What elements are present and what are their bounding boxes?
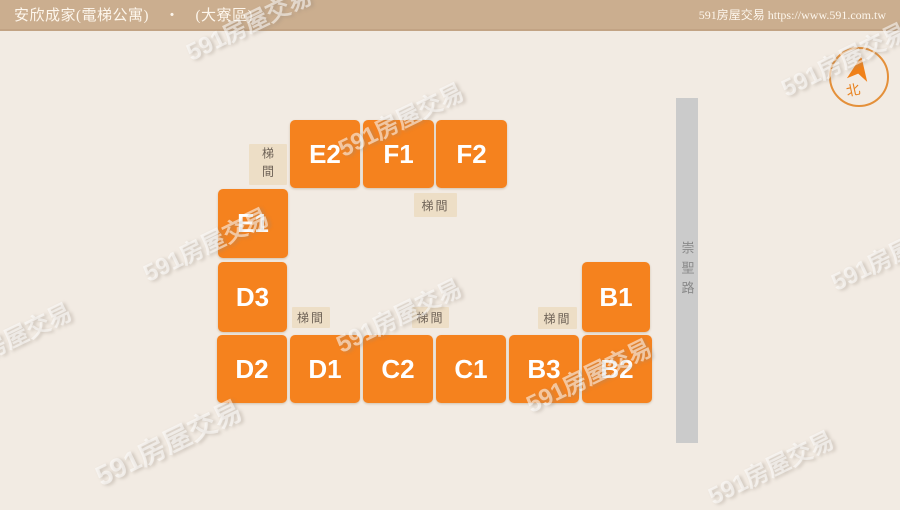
building-E1[interactable]: E1 xyxy=(218,189,288,258)
building-B1[interactable]: B1 xyxy=(582,262,650,332)
building-C2[interactable]: C2 xyxy=(363,335,433,403)
stairwell-label: 梯間 xyxy=(292,307,330,328)
building-B3[interactable]: B3 xyxy=(509,335,579,403)
stairwell-label: 梯間 xyxy=(412,307,449,328)
building-D2[interactable]: D2 xyxy=(217,335,287,403)
header-bar: 安欣成家(電梯公寓) ‧ (大寮區) 591房屋交易 https://www.5… xyxy=(0,0,900,31)
watermark: 591房屋交易 xyxy=(88,389,248,495)
building-E2[interactable]: E2 xyxy=(290,120,360,188)
site-plan-page: 安欣成家(電梯公寓) ‧ (大寮區) 591房屋交易 https://www.5… xyxy=(0,0,900,510)
compass: 北 xyxy=(829,47,889,107)
watermark: 591房屋交易 xyxy=(701,420,839,510)
road-name: 崇聖路 xyxy=(678,241,697,301)
building-C1[interactable]: C1 xyxy=(436,335,506,403)
building-F1[interactable]: F1 xyxy=(363,120,434,188)
watermark: 591房屋交易 xyxy=(0,292,77,383)
building-B2[interactable]: B2 xyxy=(582,335,652,403)
stairwell-label: 梯間 xyxy=(249,144,287,185)
building-D1[interactable]: D1 xyxy=(290,335,360,403)
stairwell-label: 梯間 xyxy=(414,193,457,217)
road: 崇聖路 xyxy=(676,98,698,443)
page-title: 安欣成家(電梯公寓) ‧ (大寮區) xyxy=(14,4,253,25)
stairwell-label: 梯間 xyxy=(538,307,577,329)
site-credit: 591房屋交易 https://www.591.com.tw xyxy=(699,6,886,23)
watermark: 591房屋交易 xyxy=(824,206,900,297)
building-D3[interactable]: D3 xyxy=(218,262,287,332)
building-F2[interactable]: F2 xyxy=(436,120,507,188)
